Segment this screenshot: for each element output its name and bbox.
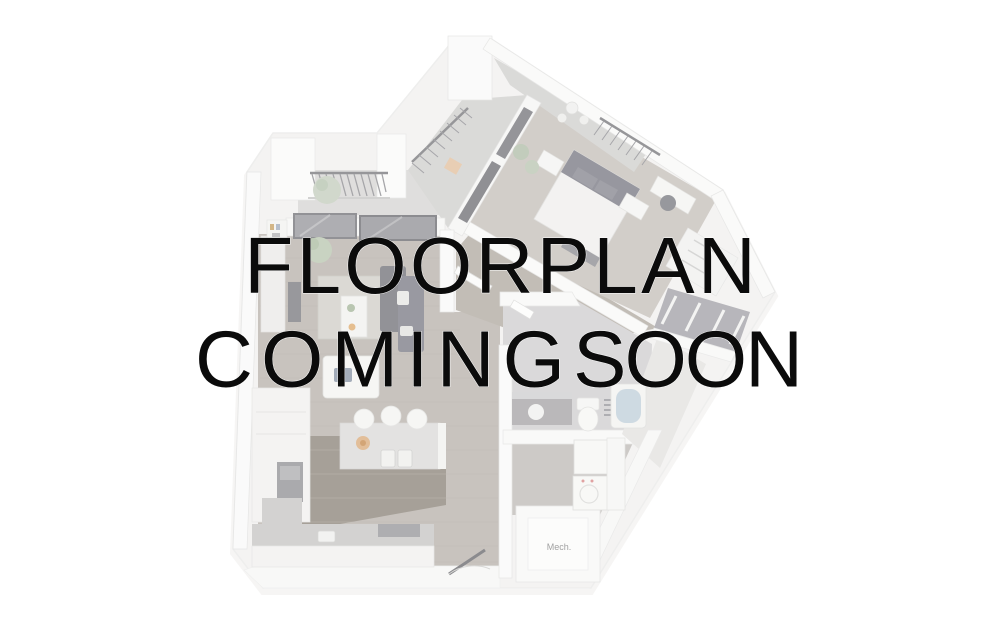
svg-text:FLOORPLAN: FLOORPLAN <box>244 220 756 310</box>
svg-text:SOON: SOON <box>573 314 803 404</box>
svg-text:COMING: COMING <box>195 314 565 404</box>
svg-text:Mech.: Mech. <box>547 542 572 552</box>
